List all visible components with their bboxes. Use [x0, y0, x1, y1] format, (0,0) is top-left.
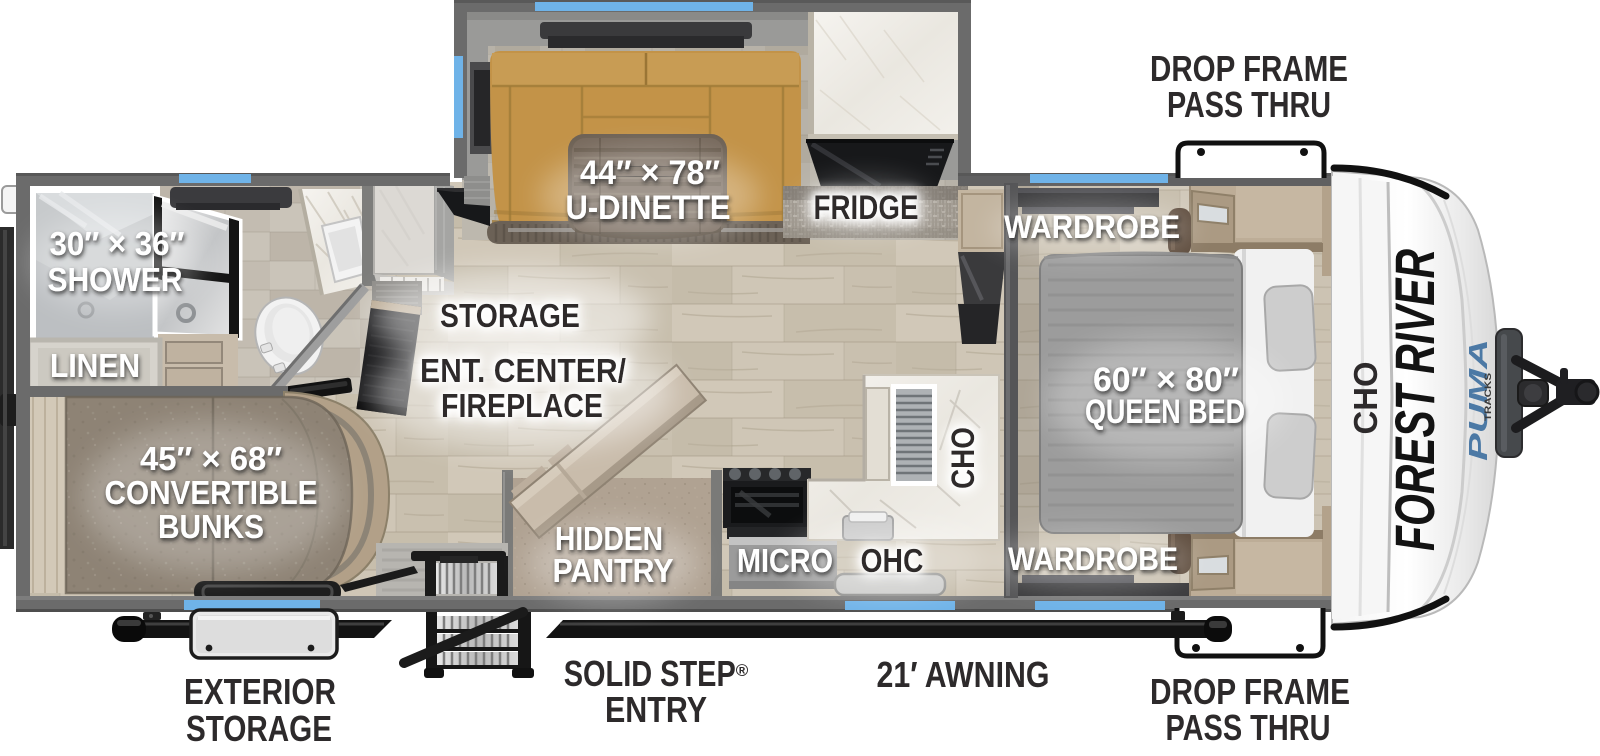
svg-text:EXTERIOR: EXTERIOR	[184, 671, 336, 712]
svg-text:45″ × 68″: 45″ × 68″	[140, 440, 282, 477]
svg-text:DROP FRAME: DROP FRAME	[1150, 671, 1350, 712]
svg-text:CHO: CHO	[1347, 362, 1384, 435]
svg-text:SOLID STEP®: SOLID STEP®	[564, 653, 749, 694]
svg-text:WARDROBE: WARDROBE	[1004, 209, 1180, 245]
svg-text:U-DINETTE: U-DINETTE	[566, 189, 731, 227]
svg-text:BUNKS: BUNKS	[158, 508, 264, 545]
svg-text:CONVERTIBLE: CONVERTIBLE	[105, 474, 318, 511]
svg-text:FRIDGE: FRIDGE	[814, 189, 919, 227]
svg-text:QUEEN BED: QUEEN BED	[1085, 393, 1245, 431]
svg-text:DROP FRAME: DROP FRAME	[1150, 48, 1348, 89]
svg-text:21′ AWNING: 21′ AWNING	[877, 654, 1050, 695]
svg-text:MICRO: MICRO	[737, 542, 833, 579]
svg-text:ENTRY: ENTRY	[605, 689, 707, 730]
svg-text:CHO: CHO	[945, 427, 981, 489]
svg-text:STORAGE: STORAGE	[186, 708, 332, 749]
svg-text:TRACKS: TRACKS	[1483, 373, 1493, 421]
svg-text:30″ × 36″: 30″ × 36″	[50, 225, 185, 262]
svg-text:44″ × 78″: 44″ × 78″	[580, 154, 720, 192]
svg-text:SHOWER: SHOWER	[48, 261, 183, 298]
svg-text:PASS THRU: PASS THRU	[1167, 84, 1331, 125]
svg-text:FOREST RIVER: FOREST RIVER	[1383, 249, 1446, 551]
svg-text:LINEN: LINEN	[50, 347, 140, 384]
svg-text:ENT. CENTER/: ENT. CENTER/	[420, 352, 626, 389]
svg-text:STORAGE: STORAGE	[440, 297, 580, 334]
svg-text:PASS THRU: PASS THRU	[1166, 707, 1331, 748]
svg-text:OHC: OHC	[861, 542, 924, 579]
svg-text:WARDROBE: WARDROBE	[1008, 541, 1178, 577]
svg-text:PANTRY: PANTRY	[553, 552, 674, 589]
svg-text:FIREPLACE: FIREPLACE	[441, 387, 603, 424]
